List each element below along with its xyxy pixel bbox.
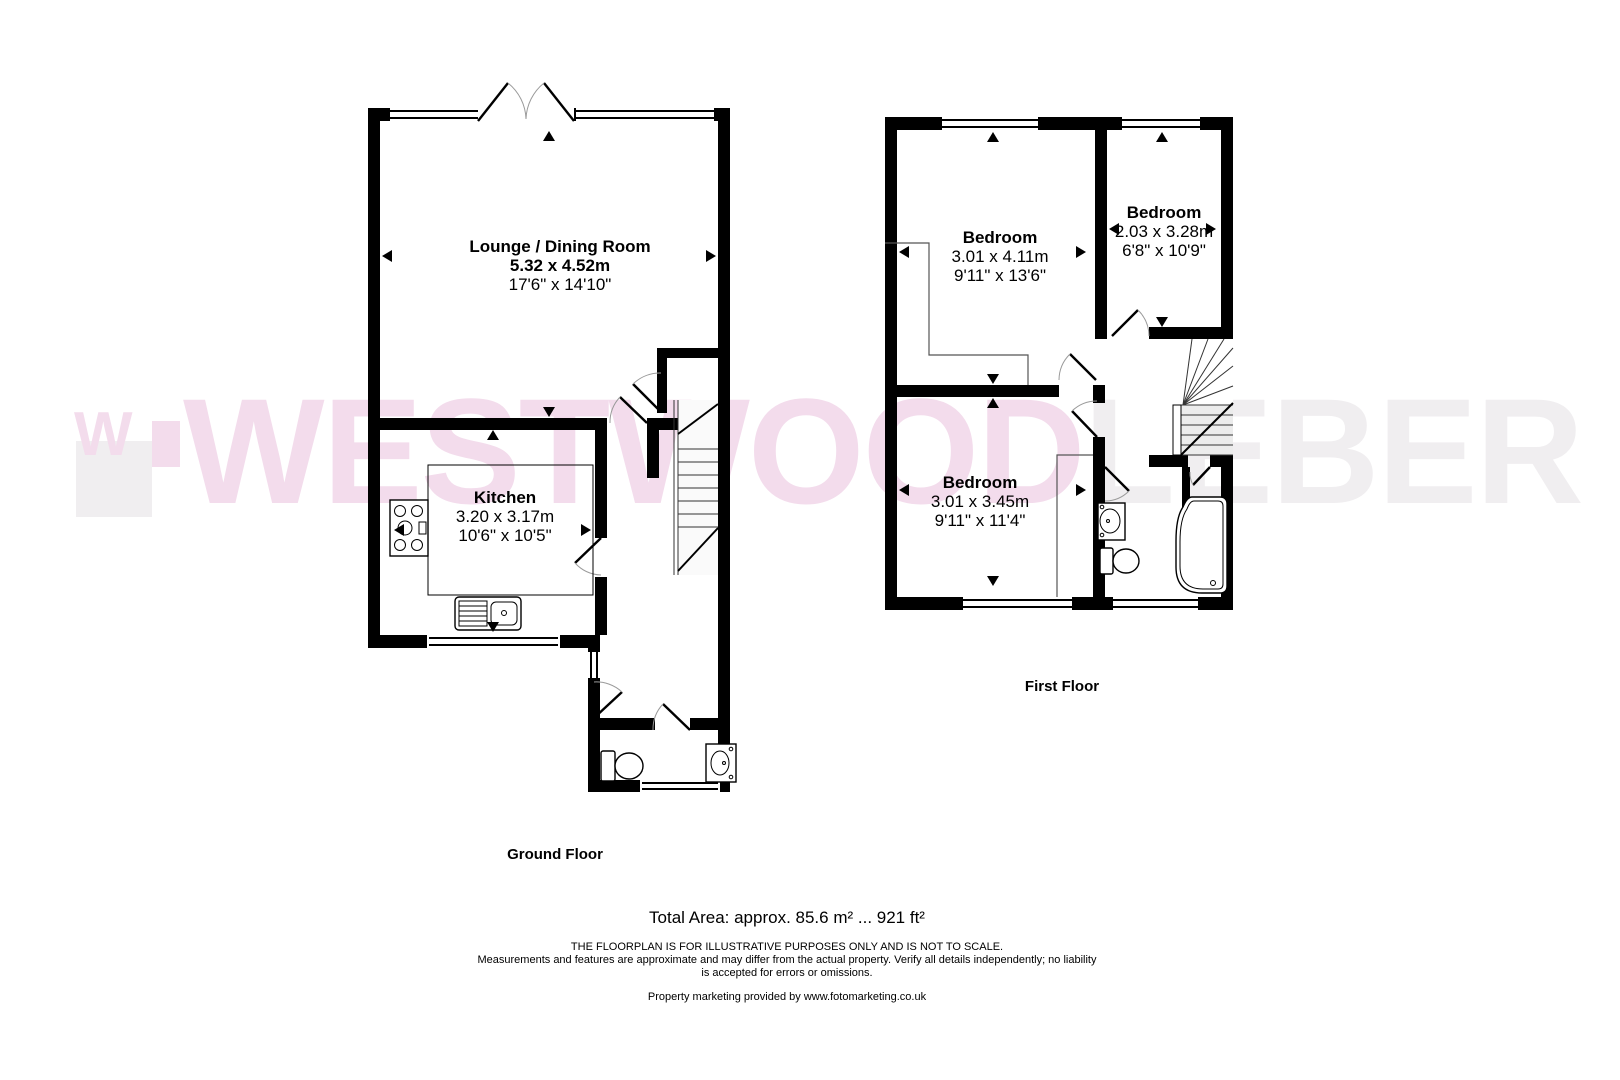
- bedroom3-metric: 3.01 x 3.45m: [931, 492, 1029, 511]
- wc-toilet-icon: [601, 751, 643, 781]
- bedroom2-imperial: 6'8" x 10'9": [1115, 241, 1213, 260]
- bathroom-door: [1105, 467, 1129, 501]
- bedroom3-door: [1072, 401, 1097, 437]
- french-doors-icon: [478, 83, 574, 121]
- bath-icon: [1176, 497, 1227, 593]
- lounge-window-left-icon: [390, 108, 478, 121]
- lounge-metric: 5.32 x 4.52m: [469, 256, 650, 275]
- bedroom2-metric: 2.03 x 3.28m: [1115, 222, 1213, 241]
- disclaimer-line-3: is accepted for errors or omissions.: [701, 967, 872, 979]
- bedroom3-label: Bedroom 3.01 x 3.45m 9'11" x 11'4": [931, 473, 1029, 530]
- watermark-logo-monogram: W: [74, 404, 133, 466]
- bathroom-window-icon: [1113, 597, 1198, 610]
- kitchen-metric: 3.20 x 3.17m: [456, 507, 554, 526]
- bedroom2-door: [1112, 310, 1149, 336]
- bedroom1-metric: 3.01 x 4.11m: [951, 247, 1048, 266]
- lounge-label: Lounge / Dining Room 5.32 x 4.52m 17'6" …: [469, 237, 650, 294]
- bedroom2-label: Bedroom 2.03 x 3.28m 6'8" x 10'9": [1115, 203, 1213, 260]
- kitchen-sink-icon: [455, 597, 521, 630]
- lounge-hall-doors: [610, 373, 661, 423]
- kitchen-door: [575, 538, 601, 575]
- wc-basin-icon: [706, 744, 736, 782]
- hob-icon: [390, 500, 428, 556]
- bedroom1-door: [1059, 354, 1096, 380]
- stairs-up-icon: [674, 400, 718, 575]
- floorplan-page: W WESTWOODLEBER: [0, 0, 1620, 1080]
- hall-side-window-icon: [588, 652, 600, 678]
- watermark-logo-block: [152, 421, 180, 467]
- ground-floor-plan: [360, 70, 740, 810]
- lounge-imperial: 17'6" x 14'10": [469, 275, 650, 294]
- ground-floor-title: Ground Floor: [507, 846, 603, 863]
- bedroom1-window-icon: [942, 117, 1038, 130]
- stairs-down-icon: [1173, 339, 1233, 455]
- marketing-credit-text: Property marketing provided by www.fotom…: [648, 991, 926, 1003]
- lounge-window-right-icon: [576, 108, 714, 121]
- bathroom-basin-icon: [1098, 503, 1125, 540]
- bedroom3-wardrobe-line: [1057, 455, 1093, 597]
- total-area-text: Total Area: approx. 85.6 m² ... 921 ft²: [649, 908, 925, 928]
- bedroom1-name: Bedroom: [951, 228, 1048, 247]
- wc-door: [653, 704, 690, 730]
- bedroom3-window-icon: [963, 597, 1072, 610]
- cupboard-door: [1190, 467, 1210, 485]
- bedroom1-label: Bedroom 3.01 x 4.11m 9'11" x 13'6": [951, 228, 1048, 285]
- bathroom-toilet-icon: [1100, 548, 1139, 574]
- disclaimer-line-2: Measurements and features are approximat…: [478, 954, 1097, 966]
- bedroom1-imperial: 9'11" x 13'6": [951, 266, 1048, 285]
- bedroom2-name: Bedroom: [1115, 203, 1213, 222]
- kitchen-window-icon: [427, 635, 560, 648]
- kitchen-name: Kitchen: [456, 488, 554, 507]
- bedroom3-name: Bedroom: [931, 473, 1029, 492]
- first-floor-plan: [880, 100, 1260, 620]
- kitchen-imperial: 10'6" x 10'5": [456, 526, 554, 545]
- ground-floor-walls: [368, 108, 730, 792]
- bedroom3-imperial: 9'11" x 11'4": [931, 511, 1029, 530]
- bedroom2-window-icon: [1122, 117, 1200, 130]
- lounge-name: Lounge / Dining Room: [469, 237, 650, 256]
- disclaimer-line-1: THE FLOORPLAN IS FOR ILLUSTRATIVE PURPOS…: [571, 941, 1003, 953]
- first-floor-title: First Floor: [1025, 678, 1099, 695]
- kitchen-label: Kitchen 3.20 x 3.17m 10'6" x 10'5": [456, 488, 554, 545]
